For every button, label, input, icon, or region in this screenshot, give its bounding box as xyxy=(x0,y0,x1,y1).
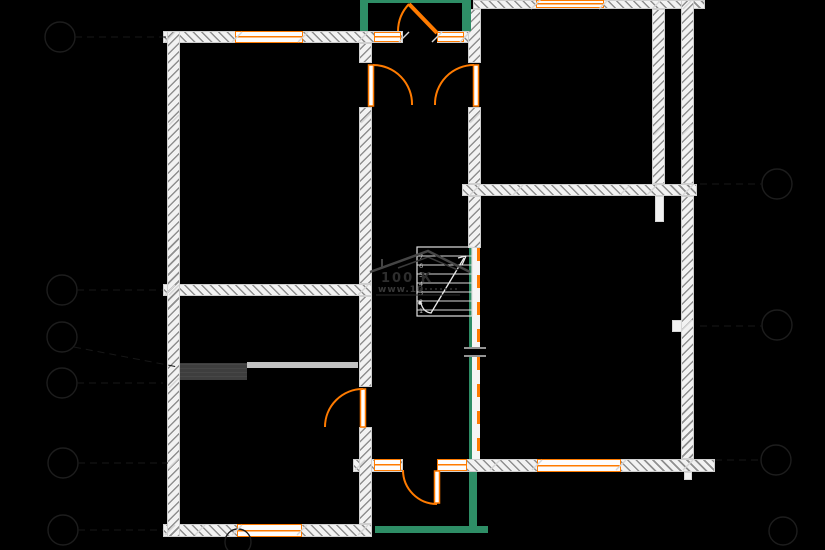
door-arc xyxy=(435,65,474,105)
dim-tick xyxy=(654,125,664,135)
door-terrace-bottom xyxy=(403,470,440,504)
axis-circle xyxy=(48,515,78,545)
dim-tick xyxy=(647,185,657,195)
dim-tick xyxy=(616,460,626,470)
door-room-bottom-left xyxy=(325,389,366,427)
door-leaf xyxy=(361,389,366,427)
axis-circle xyxy=(45,22,75,52)
dim-tick xyxy=(460,32,470,42)
dim-tick xyxy=(169,378,179,388)
door-leaf xyxy=(369,65,374,106)
dim-tick xyxy=(361,113,371,123)
axis-circle xyxy=(762,310,792,340)
dim-tick xyxy=(531,0,541,9)
dim-tick xyxy=(683,0,693,9)
door-arc xyxy=(325,389,363,427)
watermark-url-text: www.10 xyxy=(378,285,424,295)
door-arc xyxy=(398,4,409,31)
plan-overlay: 7654321 100 К www.10 xyxy=(0,0,825,550)
door-arc xyxy=(373,65,412,105)
dim-tick xyxy=(169,115,179,125)
door-hall-left xyxy=(369,65,413,106)
dim-tick xyxy=(470,113,480,123)
dim-tick xyxy=(399,32,409,42)
floor-plan-canvas: 7654321 100 К www.10 xyxy=(0,0,825,550)
dim-tick xyxy=(165,32,175,42)
dim-tick xyxy=(490,460,500,470)
watermark-logo-text: 100 К xyxy=(381,271,433,286)
stair-arrow-start xyxy=(418,301,422,305)
dim-tick xyxy=(599,0,609,9)
dim-tick xyxy=(620,185,630,195)
dim-tick xyxy=(165,525,175,535)
dim-tick xyxy=(358,525,368,535)
dim-tick xyxy=(298,32,308,42)
axis-circle xyxy=(47,275,77,305)
axis-circle xyxy=(761,445,791,475)
dim-tick xyxy=(682,320,692,330)
axis-circle xyxy=(769,517,797,545)
axis-circle xyxy=(47,368,77,398)
door-arc xyxy=(403,470,437,504)
dim-tick xyxy=(513,185,523,195)
dim-tick xyxy=(652,0,662,9)
stair-step-number: 6 xyxy=(419,262,423,270)
dim-tick xyxy=(470,185,480,195)
door-terrace-top xyxy=(398,4,437,33)
dim-tick xyxy=(358,32,368,42)
axis-circle xyxy=(47,322,77,352)
axis-circle xyxy=(225,529,251,550)
dim-tick xyxy=(169,458,179,468)
dim-tick xyxy=(232,32,242,42)
wall-opening-marks xyxy=(464,348,486,356)
door-leaf xyxy=(474,65,479,106)
door-hall-right xyxy=(435,65,479,106)
dim-tick xyxy=(195,525,205,535)
axis-circle xyxy=(762,169,792,199)
dim-tick xyxy=(532,460,542,470)
axis-circle xyxy=(48,448,78,478)
dim-tick xyxy=(683,460,693,470)
door-leaf xyxy=(409,4,437,33)
axis-line xyxy=(74,347,178,367)
dim-tick xyxy=(683,185,693,195)
dim-tick xyxy=(358,285,368,295)
dim-tick xyxy=(355,460,365,470)
dim-tick xyxy=(682,125,692,135)
dim-tick xyxy=(297,525,307,535)
dim-tick xyxy=(432,32,442,42)
dimension-ticks xyxy=(165,0,693,535)
door-leaf xyxy=(435,471,440,503)
